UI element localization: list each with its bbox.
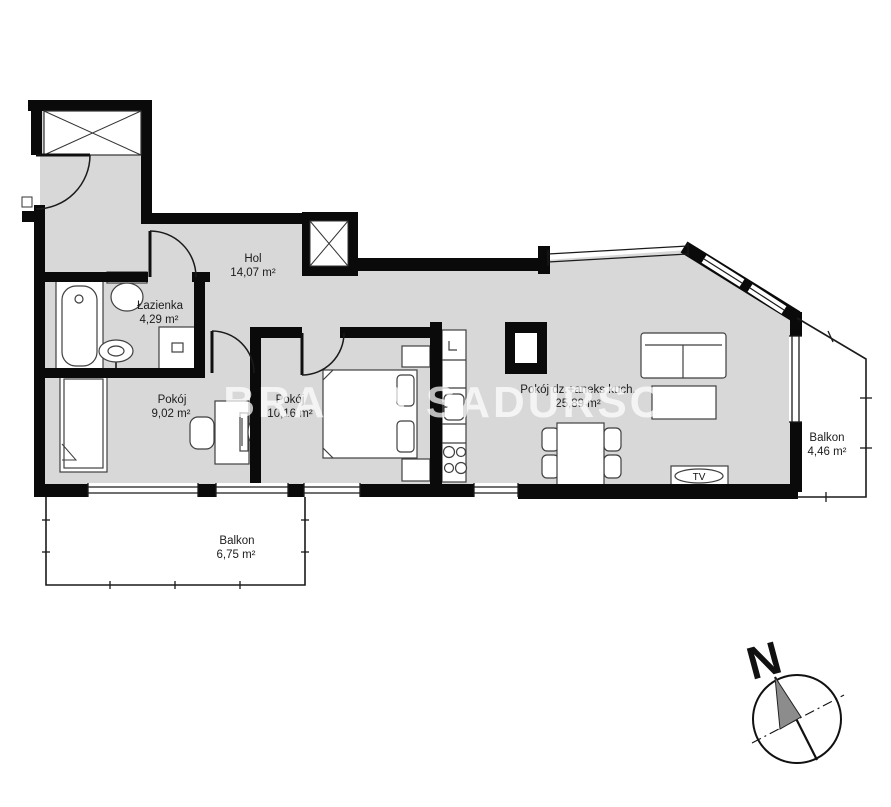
sofa — [641, 333, 726, 378]
door-hinge-plate — [22, 197, 32, 207]
bathtub — [56, 280, 103, 372]
single-bed — [60, 371, 107, 472]
label-balkon-right-name: Balkon — [809, 432, 844, 444]
label-hol-name: Hol — [244, 253, 261, 265]
dining-table — [557, 423, 604, 486]
label-hol-area: 14,07 m² — [230, 267, 276, 279]
label-balkon-right-area: 4,46 m² — [808, 446, 847, 458]
label-lazienka-area: 4,29 m² — [140, 314, 179, 326]
dining-chair — [604, 428, 621, 451]
office-chair — [190, 417, 214, 449]
dining-set — [542, 423, 621, 486]
nightstand — [402, 459, 430, 481]
compass-rose: N — [741, 631, 844, 763]
floorplan-drawing: TV — [0, 0, 891, 807]
north-label: N — [741, 631, 787, 690]
label-lazienka-name: Łazienka — [137, 300, 184, 312]
label-pokoj-left-area: 9,02 m² — [152, 408, 191, 420]
shaft-living — [505, 322, 547, 374]
floorplan-page: TV — [0, 0, 891, 807]
label-pokoj-left-name: Pokój — [158, 394, 187, 406]
balcony-bottom-railing — [42, 497, 309, 589]
balcony-right-railing — [797, 318, 872, 502]
apartment-floor — [40, 100, 796, 490]
label-balkon-bottom-name: Balkon — [219, 535, 254, 547]
wardrobe — [44, 111, 141, 155]
agency-watermark: BRACIA SADURSCY — [223, 378, 697, 427]
shaft-hall — [302, 212, 358, 276]
label-balkon-bottom-area: 6,75 m² — [217, 549, 256, 561]
nightstand — [402, 346, 430, 367]
dining-chair — [604, 455, 621, 478]
washing-machine — [159, 327, 196, 369]
tv-cabinet-label: TV — [693, 472, 706, 483]
